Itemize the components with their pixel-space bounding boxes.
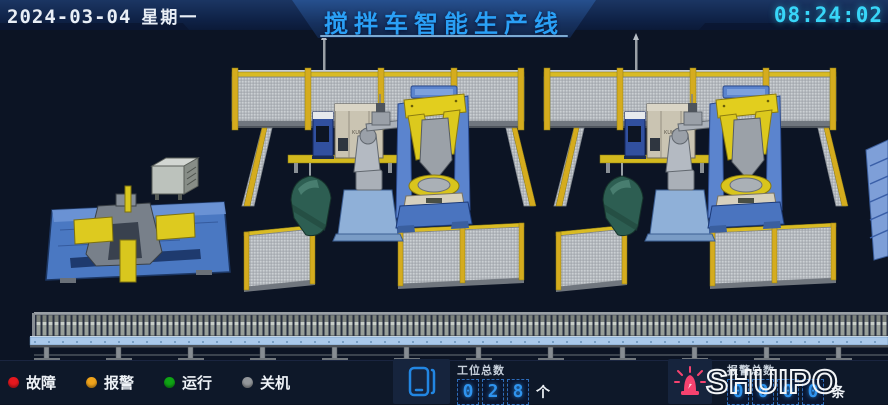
station-digit: 0 <box>457 379 479 405</box>
legend-item-running: 运行 <box>164 372 212 393</box>
roller-conveyor <box>30 312 888 361</box>
alarm-status-dot <box>86 377 97 388</box>
status-bar: 故障 报警 运行 关机 工位总数 0 2 8 个 <box>0 360 888 404</box>
legend-label: 故障 <box>26 372 56 393</box>
station-counter: 工位总数 0 2 8 个 <box>457 362 550 405</box>
station-counter-panel <box>393 359 450 404</box>
status-legend: 故障 报警 运行 关机 <box>8 361 290 404</box>
shuipo-logo: SHUIPO <box>704 362 886 402</box>
station-counter-unit: 个 <box>536 382 550 402</box>
title-banner: 搅拌车智能生产线 <box>292 0 596 38</box>
alarm-beacon-icon <box>674 365 706 399</box>
conveyor-legs <box>44 347 841 359</box>
fault-status-dot <box>8 377 19 388</box>
clock-display: 08:24:02 <box>774 3 883 27</box>
station-digit: 8 <box>507 379 529 405</box>
legend-item-off: 关机 <box>242 372 290 393</box>
date-text: 2024-03-04 <box>7 6 131 28</box>
production-line-scene: KUKA <box>0 28 888 364</box>
clamp-right <box>156 213 195 240</box>
station-digit: 2 <box>482 379 504 405</box>
center-actuator <box>120 240 136 282</box>
banner-underline <box>320 35 568 37</box>
legend-label: 关机 <box>260 372 290 393</box>
station-counter-label: 工位总数 <box>457 362 550 378</box>
partial-machine-right <box>866 140 888 260</box>
legend-label: 报警 <box>104 372 134 393</box>
weekday-text: 星期一 <box>141 8 198 27</box>
legend-label: 运行 <box>182 372 212 393</box>
station-device-icon <box>405 365 439 399</box>
workcell-1 <box>232 33 536 292</box>
legend-item-fault: 故障 <box>8 372 56 393</box>
shuipo-logo-text: SHUIPO <box>706 363 839 400</box>
off-status-dot <box>242 377 253 388</box>
legend-item-alarm: 报警 <box>86 372 134 393</box>
page-title: 搅拌车智能生产线 <box>292 4 596 39</box>
clamp-left <box>74 217 113 244</box>
workcell-2 <box>544 33 848 292</box>
date-display: 2024-03-04星期一 <box>7 3 198 28</box>
prep-station <box>46 186 230 283</box>
running-status-dot <box>164 377 175 388</box>
control-cabinet <box>152 158 198 200</box>
